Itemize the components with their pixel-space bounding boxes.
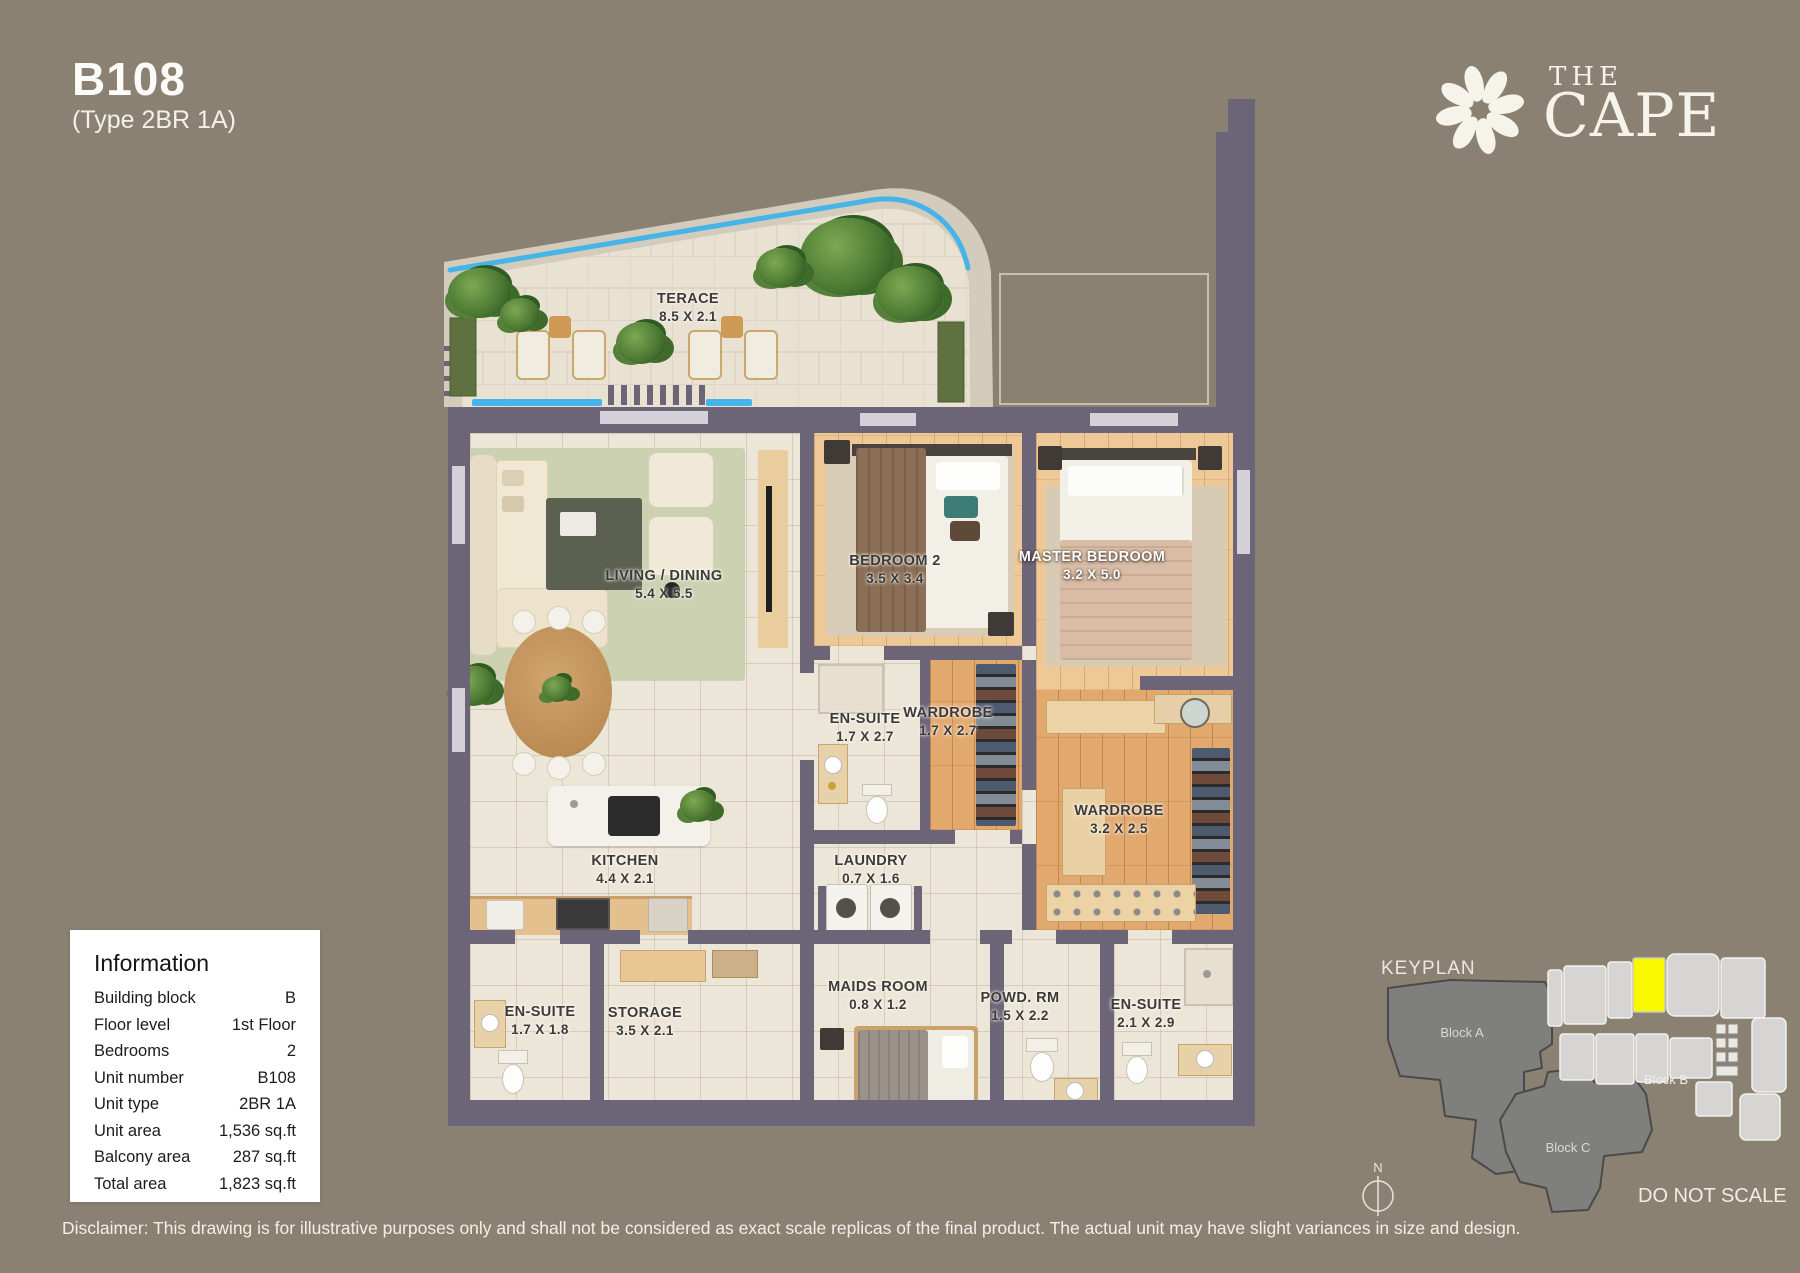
wall-segment xyxy=(590,944,604,1100)
keyplan-block-b-label: Block B xyxy=(1644,1072,1688,1087)
tv-screen xyxy=(766,486,772,612)
dining-chair xyxy=(582,752,606,776)
sofa xyxy=(470,455,496,655)
accent-chair xyxy=(648,452,714,508)
info-value: 287 sq.ft xyxy=(233,1144,296,1171)
wall-segment xyxy=(1010,830,1022,844)
terrace-planter-right xyxy=(938,322,964,402)
chimney-wall xyxy=(1216,99,1255,407)
room-name: WARDROBE xyxy=(903,705,992,721)
door-track-tooth xyxy=(647,385,653,405)
wall-segment xyxy=(980,930,1012,944)
do-not-scale-note: DO NOT SCALE xyxy=(1638,1185,1787,1208)
gold-fixture xyxy=(828,782,836,790)
bedroom2-cushion-teal xyxy=(944,496,978,518)
sofa-pillow xyxy=(502,496,524,512)
info-label: Building block xyxy=(94,985,196,1012)
room-name: EN-SUITE xyxy=(505,1004,576,1020)
wall-segment xyxy=(814,830,955,844)
room-dims: 8.5 X 2.1 xyxy=(657,308,719,325)
info-row: Unit number B108 xyxy=(94,1065,296,1092)
dining-chair xyxy=(547,756,571,780)
brand-name-cape: CAPE xyxy=(1543,86,1720,146)
bedroom2-throw xyxy=(856,448,926,632)
info-value: B108 xyxy=(257,1065,296,1092)
pool-edge-strip xyxy=(472,399,602,406)
sink-basin xyxy=(1066,1082,1084,1100)
sink-basin xyxy=(481,1014,499,1032)
door-track-tooth xyxy=(686,385,692,405)
accent-chair xyxy=(648,516,714,576)
room-label-storage: STORAGE 3.5 X 2.1 xyxy=(608,1005,682,1039)
sink-basin xyxy=(824,756,842,774)
keyplan-block-a-label: Block A xyxy=(1440,1025,1484,1040)
info-value: 1st Floor xyxy=(232,1012,296,1039)
unit-type-subtitle: (Type 2BR 1A) xyxy=(72,106,236,135)
wall-segment xyxy=(1172,930,1233,944)
washing-machine-door xyxy=(880,898,900,918)
info-row: Balcony area 287 sq.ft xyxy=(94,1144,296,1171)
shower-drain xyxy=(1203,970,1211,978)
wall-segment xyxy=(1140,676,1233,690)
coffee-table-tray xyxy=(560,512,596,536)
wardrobe-clothes-rack xyxy=(1192,748,1230,914)
room-dims: 0.8 X 1.2 xyxy=(828,996,928,1013)
bathroom-vanity xyxy=(818,744,848,804)
bedroom2-pillow xyxy=(936,462,1000,490)
island-faucet xyxy=(570,800,578,808)
room-name: LAUNDRY xyxy=(834,853,907,869)
info-label: Total area xyxy=(94,1171,166,1198)
wall-segment xyxy=(560,930,640,944)
room-label-kitchen: KITCHEN 4.4 X 2.1 xyxy=(591,853,658,887)
toilet xyxy=(1026,1038,1058,1052)
room-label-terrace: TERACE 8.5 X 2.1 xyxy=(657,291,719,325)
door-track-tooth xyxy=(660,385,666,405)
room-label-ensuite-mid: EN-SUITE 1.7 X 2.7 xyxy=(830,711,901,745)
nightstand xyxy=(1198,446,1222,470)
room-name: POWD. RM xyxy=(981,990,1060,1006)
wall-segment xyxy=(800,944,814,1100)
info-value: B xyxy=(285,985,296,1012)
door-track-tooth xyxy=(634,385,640,405)
terrace-lounger xyxy=(516,330,550,380)
nightstand xyxy=(1038,446,1062,470)
room-label-master-bedroom: MASTER BEDROOM 3.2 X 5.0 xyxy=(1019,549,1166,583)
dining-chair xyxy=(582,610,606,634)
wall-segment xyxy=(1056,930,1128,944)
toilet xyxy=(498,1050,528,1064)
info-row: Floor level 1st Floor xyxy=(94,1012,296,1039)
terrace-plant xyxy=(500,298,540,332)
info-value: 2 xyxy=(287,1038,296,1065)
room-label-ensuite-right: EN-SUITE 2.1 X 2.9 xyxy=(1111,997,1182,1031)
info-label: Unit number xyxy=(94,1065,184,1092)
room-dims: 1.7 X 2.7 xyxy=(903,722,992,739)
room-dims: 5.4 X 5.5 xyxy=(605,585,722,602)
storage-box xyxy=(712,950,758,978)
info-row: Total area 1,823 sq.ft xyxy=(94,1171,296,1198)
room-label-ensuite-bl: EN-SUITE 1.7 X 1.8 xyxy=(505,1004,576,1038)
room-label-wardrobe-master: WARDROBE 3.2 X 2.5 xyxy=(1074,803,1163,837)
door-track-tooth xyxy=(673,385,679,405)
island-cooktop xyxy=(608,796,660,836)
room-label-powder-room: POWD. RM 1.5 X 2.2 xyxy=(981,990,1060,1024)
info-label: Unit type xyxy=(94,1091,159,1118)
keyplan-block-c-label: Block C xyxy=(1546,1140,1591,1155)
wall-segment xyxy=(814,646,830,660)
compass-north-label: N xyxy=(1373,1160,1382,1175)
compass-icon xyxy=(1363,1176,1393,1216)
room-name: TERACE xyxy=(657,291,719,307)
terrace-lounger xyxy=(688,330,722,380)
toilet xyxy=(866,796,888,824)
wall-segment xyxy=(1022,433,1036,646)
room-name: EN-SUITE xyxy=(830,711,901,727)
room-dims: 3.2 X 2.5 xyxy=(1074,820,1163,837)
keyplan-highlighted-unit xyxy=(1633,958,1665,1012)
brand-flower-icon xyxy=(1434,62,1526,158)
roof-ledge-outline xyxy=(1000,274,1208,404)
maids-blanket xyxy=(858,1030,928,1108)
wall-segment xyxy=(688,930,814,944)
wall-segment xyxy=(818,886,826,930)
room-name: EN-SUITE xyxy=(1111,997,1182,1013)
dining-chair xyxy=(512,610,536,634)
info-value: 2BR 1A xyxy=(239,1091,296,1118)
wardrobe-clothes-rack xyxy=(976,664,1016,826)
kitchen-sink xyxy=(486,900,524,930)
nightstand xyxy=(988,612,1014,636)
room-label-wardrobe-small: WARDROBE 1.7 X 2.7 xyxy=(903,705,992,739)
window xyxy=(452,466,465,544)
wall-segment xyxy=(914,886,922,930)
disclaimer-text: Disclaimer: This drawing is for illustra… xyxy=(62,1218,1520,1239)
window xyxy=(860,413,916,426)
info-row: Unit type 2BR 1A xyxy=(94,1091,296,1118)
maids-pillow xyxy=(942,1036,968,1068)
room-dims: 0.7 X 1.6 xyxy=(834,870,907,887)
room-label-living-dining: LIVING / DINING 5.4 X 5.5 xyxy=(605,568,722,602)
terrace-plant xyxy=(756,248,806,288)
keyplan-title: KEYPLAN xyxy=(1381,958,1476,980)
wall-segment xyxy=(1022,844,1036,930)
information-title: Information xyxy=(94,950,320,977)
wall-segment xyxy=(1022,660,1036,790)
wall-segment xyxy=(470,930,515,944)
info-label: Bedrooms xyxy=(94,1038,169,1065)
room-name: WARDROBE xyxy=(1074,803,1163,819)
page-title: B108 xyxy=(72,52,186,106)
info-row: Bedrooms 2 xyxy=(94,1038,296,1065)
wall-segment xyxy=(920,660,930,830)
room-name: MASTER BEDROOM xyxy=(1019,549,1166,565)
info-label: Balcony area xyxy=(94,1144,190,1171)
room-dims: 1.7 X 1.8 xyxy=(505,1021,576,1038)
toilet xyxy=(1030,1052,1054,1082)
storage-shelf xyxy=(620,950,706,982)
wardrobe-cabinet xyxy=(1046,700,1166,734)
door-track-tooth xyxy=(608,385,614,405)
room-dims: 3.5 X 3.4 xyxy=(849,570,940,587)
room-dims: 4.4 X 2.1 xyxy=(591,870,658,887)
toilet xyxy=(502,1064,524,1094)
wall-segment xyxy=(814,930,930,944)
terrace-lounger xyxy=(572,330,606,380)
terrace-side-table xyxy=(549,316,571,338)
shower xyxy=(818,664,884,714)
room-dims: 3.2 X 5.0 xyxy=(1019,566,1166,583)
wall-segment xyxy=(884,646,1022,660)
nightstand xyxy=(824,440,850,464)
toilet xyxy=(1126,1056,1148,1084)
tv-console xyxy=(758,450,788,648)
toilet xyxy=(1122,1042,1152,1056)
information-panel: Information Building block B Floor level… xyxy=(70,930,320,1202)
kitchen-stove xyxy=(556,898,610,930)
room-name: BEDROOM 2 xyxy=(849,553,940,569)
nightstand xyxy=(820,1028,844,1050)
info-value: 1,536 sq.ft xyxy=(219,1118,296,1145)
terrace-planter-left xyxy=(450,318,476,396)
room-label-laundry: LAUNDRY 0.7 X 1.6 xyxy=(834,853,907,887)
island-plant xyxy=(680,790,716,822)
shoe-cabinet xyxy=(1046,884,1196,922)
keyplan-core-details xyxy=(1716,1024,1738,1076)
window xyxy=(1090,413,1178,426)
terrace-side-table xyxy=(721,316,743,338)
terrace-plant xyxy=(876,266,944,322)
terrace-lounger xyxy=(744,330,778,380)
info-label: Unit area xyxy=(94,1118,161,1145)
toilet xyxy=(862,784,892,796)
kitchen-fridge xyxy=(648,898,688,932)
room-label-bedroom2: BEDROOM 2 3.5 X 3.4 xyxy=(849,553,940,587)
wall-segment xyxy=(800,760,814,930)
room-dims: 1.7 X 2.7 xyxy=(830,728,901,745)
sink-basin xyxy=(1196,1050,1214,1068)
master-pillows xyxy=(1068,466,1184,496)
room-label-maids-room: MAIDS ROOM 0.8 X 1.2 xyxy=(828,979,928,1013)
sofa-pillow xyxy=(502,470,524,486)
room-dims: 2.1 X 2.9 xyxy=(1111,1014,1182,1031)
dining-centerpiece xyxy=(542,676,572,702)
bedroom2-cushion-brown xyxy=(950,521,980,541)
dining-chair xyxy=(547,606,571,630)
info-value: 1,823 sq.ft xyxy=(219,1171,296,1198)
sliding-door-glass xyxy=(600,411,708,424)
vanity-mirror xyxy=(1180,698,1210,728)
dining-chair xyxy=(512,752,536,776)
room-dims: 3.5 X 2.1 xyxy=(608,1022,682,1039)
room-name: LIVING / DINING xyxy=(605,568,722,584)
info-row: Unit area 1,536 sq.ft xyxy=(94,1118,296,1145)
washing-machine-door xyxy=(836,898,856,918)
room-name: MAIDS ROOM xyxy=(828,979,928,995)
master-headboard xyxy=(1056,448,1196,460)
door-track-tooth xyxy=(621,385,627,405)
floorplan-page: B108 (Type 2BR 1A) THE CAPE xyxy=(0,0,1800,1273)
room-name: STORAGE xyxy=(608,1005,682,1021)
terrace-plant xyxy=(616,322,666,364)
wall-segment xyxy=(448,1100,1255,1126)
wall-segment xyxy=(800,433,814,673)
information-rows: Building block B Floor level 1st Floor B… xyxy=(94,985,296,1197)
pool-edge-strip xyxy=(706,399,752,406)
door-track-tooth xyxy=(699,385,705,405)
info-row: Building block B xyxy=(94,985,296,1012)
window xyxy=(1237,470,1250,554)
room-dims: 1.5 X 2.2 xyxy=(981,1007,1060,1024)
window xyxy=(452,688,465,752)
room-name: KITCHEN xyxy=(591,853,658,869)
info-label: Floor level xyxy=(94,1012,170,1039)
